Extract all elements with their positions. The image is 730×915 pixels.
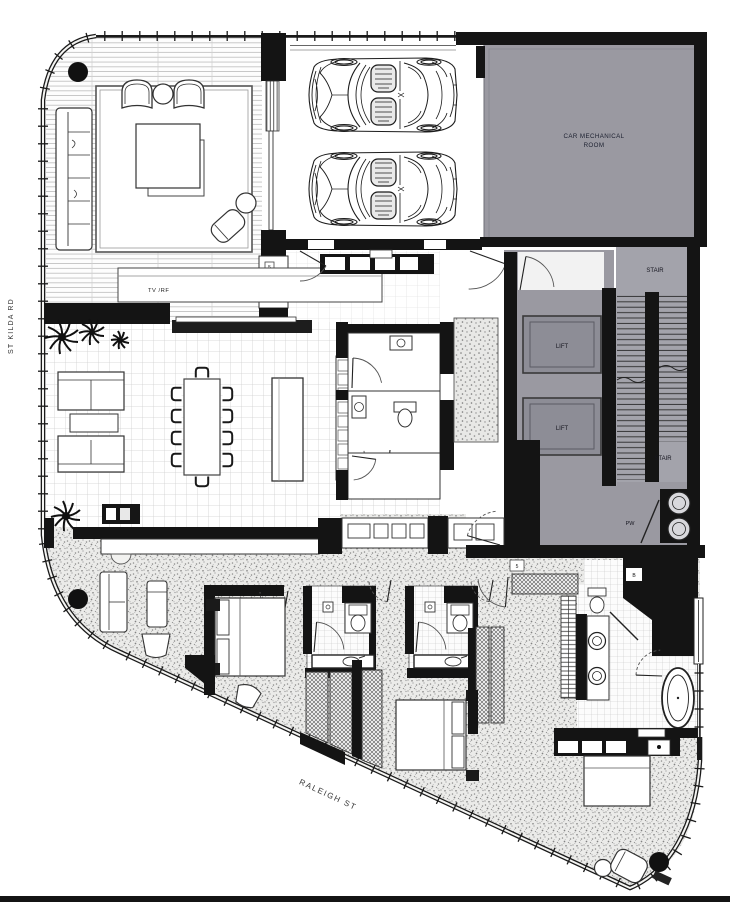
svg-text:5: 5 [516, 564, 519, 570]
svg-text:LIFT: LIFT [556, 426, 569, 432]
svg-text:LIFT: LIFT [556, 344, 569, 350]
svg-text:ST KILDA RD: ST KILDA RD [8, 298, 15, 354]
svg-text:STAIR: STAIR [646, 268, 664, 274]
svg-text:TV /RF: TV /RF [148, 288, 169, 294]
svg-text:PW: PW [626, 521, 636, 527]
svg-text:CAR MECHANICAL: CAR MECHANICAL [564, 133, 625, 140]
svg-text:ROOM: ROOM [584, 142, 605, 149]
svg-text:STAIR: STAIR [654, 456, 672, 462]
svg-text:RALEIGH ST: RALEIGH ST [298, 777, 359, 812]
